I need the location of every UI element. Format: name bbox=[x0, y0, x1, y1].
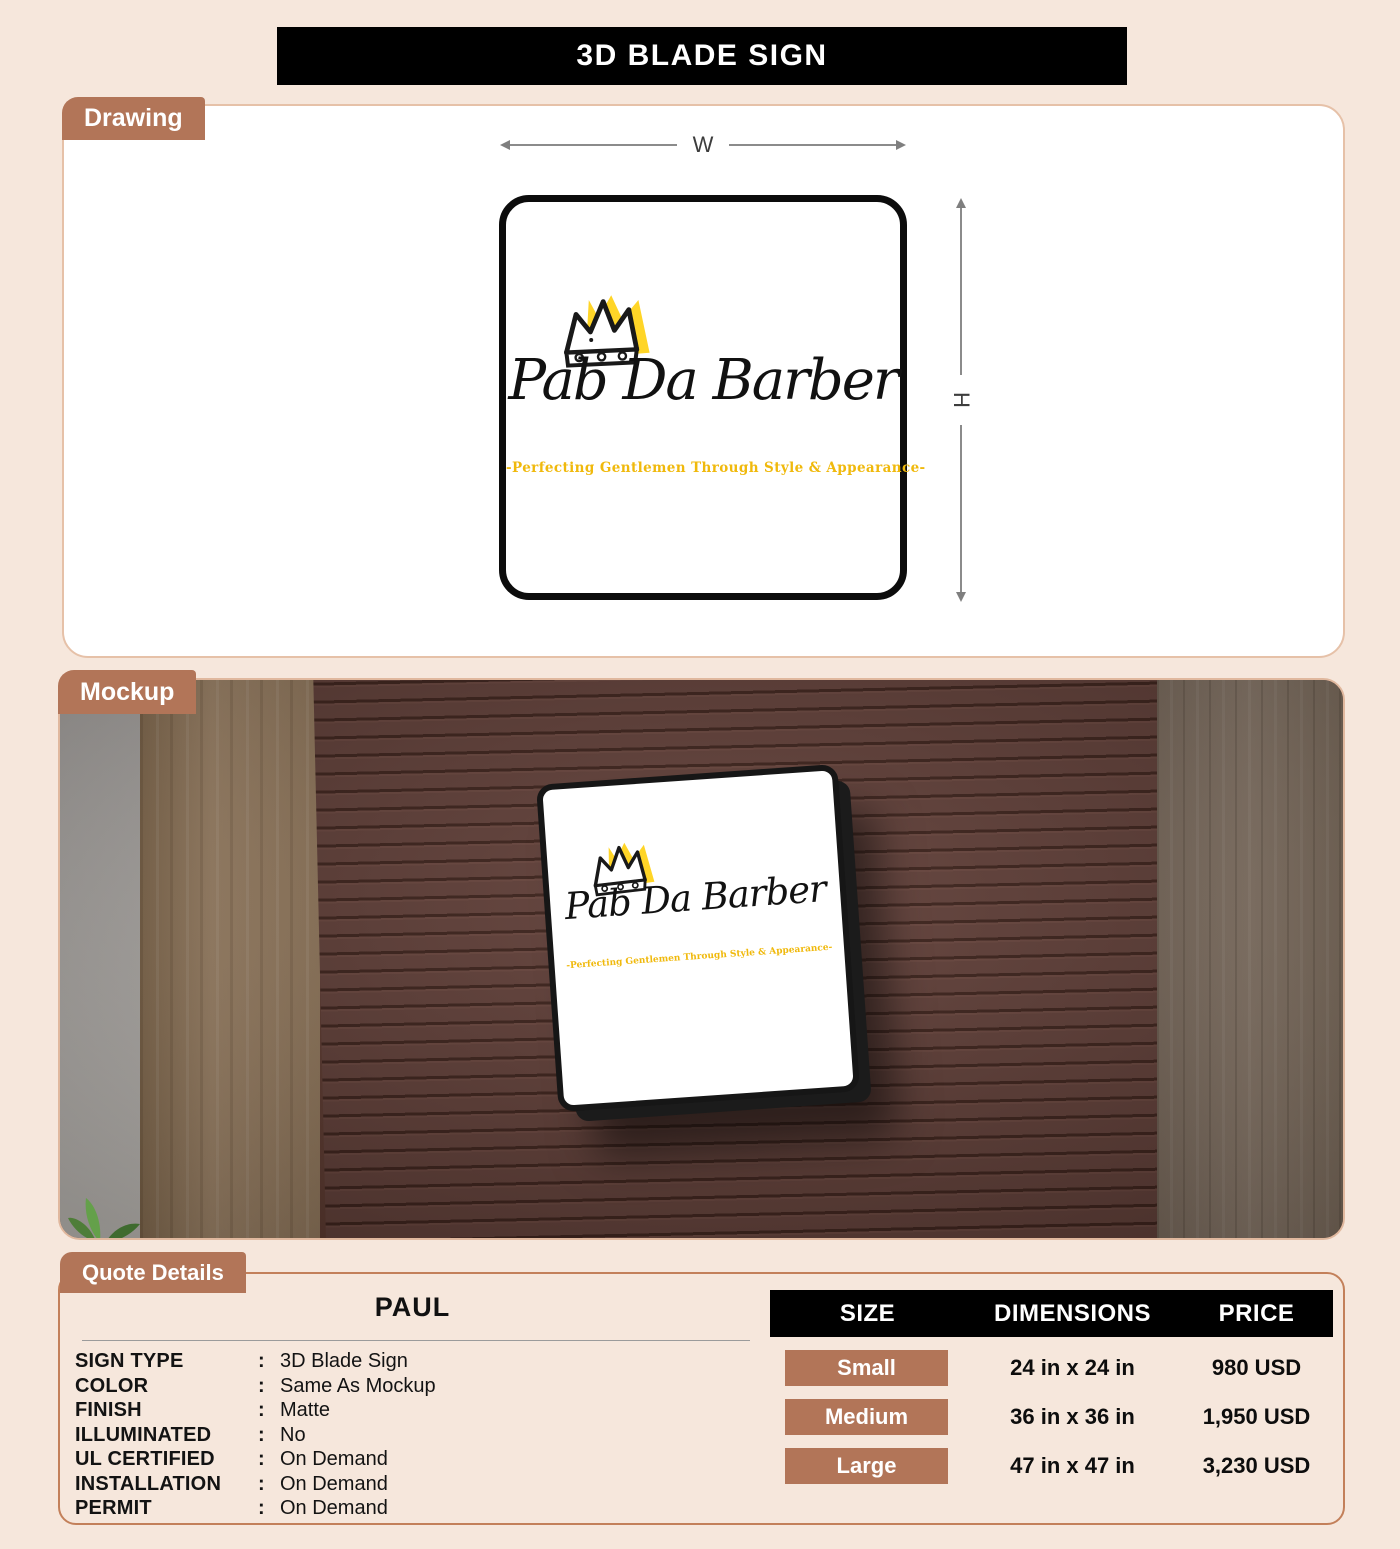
spec-row: FINISH : Matte bbox=[75, 1399, 755, 1424]
price-value: 980 USD bbox=[1180, 1355, 1333, 1381]
dimensions-value: 24 in x 24 in bbox=[965, 1355, 1180, 1381]
mockup-brand-logo: Pab Da Barber -Perfecting Gentlemen Thro… bbox=[542, 770, 853, 1105]
height-label: H bbox=[936, 392, 986, 408]
column-header-price: PRICE bbox=[1180, 1300, 1333, 1328]
drawing-section-tab: Drawing bbox=[62, 97, 205, 140]
spec-list: SIGN TYPE : 3D Blade Sign COLOR : Same A… bbox=[75, 1350, 755, 1522]
mockup-sign: Pab Da Barber -Perfecting Gentlemen Thro… bbox=[536, 764, 860, 1112]
arrow-up-icon bbox=[956, 198, 966, 208]
spec-row: UL CERTIFIED : On Demand bbox=[75, 1448, 755, 1473]
drawing-panel: W H bbox=[62, 104, 1345, 658]
page-title: 3D BLADE SIGN bbox=[277, 27, 1127, 85]
brand-tagline: -Perfecting Gentlemen Through Style & Ap… bbox=[554, 942, 844, 972]
width-label: W bbox=[677, 132, 730, 158]
price-value: 1,950 USD bbox=[1180, 1404, 1333, 1430]
quote-section-tab: Quote Details bbox=[60, 1252, 246, 1293]
size-large-button[interactable]: Large bbox=[785, 1448, 948, 1484]
spec-row: ILLUMINATED : No bbox=[75, 1424, 755, 1449]
spec-row: INSTALLATION : On Demand bbox=[75, 1473, 755, 1498]
brand-name: Pab Da Barber bbox=[506, 348, 900, 413]
spec-row: COLOR : Same As Mockup bbox=[75, 1375, 755, 1400]
arrow-right-icon bbox=[896, 140, 906, 150]
divider bbox=[82, 1340, 750, 1341]
plant-icon bbox=[66, 1186, 176, 1240]
brand-logo: Pab Da Barber -Perfecting Gentlemen Thro… bbox=[506, 202, 900, 593]
price-value: 3,230 USD bbox=[1180, 1453, 1333, 1479]
customer-name: PAUL bbox=[75, 1292, 750, 1323]
spec-row: SIGN TYPE : 3D Blade Sign bbox=[75, 1350, 755, 1375]
brand-tagline: -Perfecting Gentlemen Through Style & Ap… bbox=[506, 460, 900, 476]
dimensions-value: 47 in x 47 in bbox=[965, 1453, 1180, 1479]
table-row: Large 47 in x 47 in 3,230 USD bbox=[770, 1448, 1333, 1484]
dimensions-value: 36 in x 36 in bbox=[965, 1404, 1180, 1430]
price-table: SIZE DIMENSIONS PRICE Small 24 in x 24 i… bbox=[770, 1290, 1333, 1484]
table-row: Small 24 in x 24 in 980 USD bbox=[770, 1350, 1333, 1386]
quote-sheet: 3D BLADE SIGN Drawing W H bbox=[0, 0, 1400, 1549]
mockup-image: Pab Da Barber -Perfecting Gentlemen Thro… bbox=[58, 678, 1345, 1240]
column-header-size: SIZE bbox=[770, 1300, 965, 1328]
arrow-down-icon bbox=[956, 592, 966, 602]
price-table-header: SIZE DIMENSIONS PRICE bbox=[770, 1290, 1333, 1337]
table-row: Medium 36 in x 36 in 1,950 USD bbox=[770, 1399, 1333, 1435]
column-header-dimensions: DIMENSIONS bbox=[965, 1300, 1180, 1328]
size-medium-button[interactable]: Medium bbox=[785, 1399, 948, 1435]
mockup-section-tab: Mockup bbox=[58, 670, 196, 714]
width-dimension-arrow: W bbox=[500, 134, 906, 156]
arrow-left-icon bbox=[500, 140, 510, 150]
sign-drawing: Pab Da Barber -Perfecting Gentlemen Thro… bbox=[499, 195, 907, 600]
size-small-button[interactable]: Small bbox=[785, 1350, 948, 1386]
spec-row: PERMIT : On Demand bbox=[75, 1497, 755, 1522]
height-dimension-arrow: H bbox=[950, 198, 972, 602]
